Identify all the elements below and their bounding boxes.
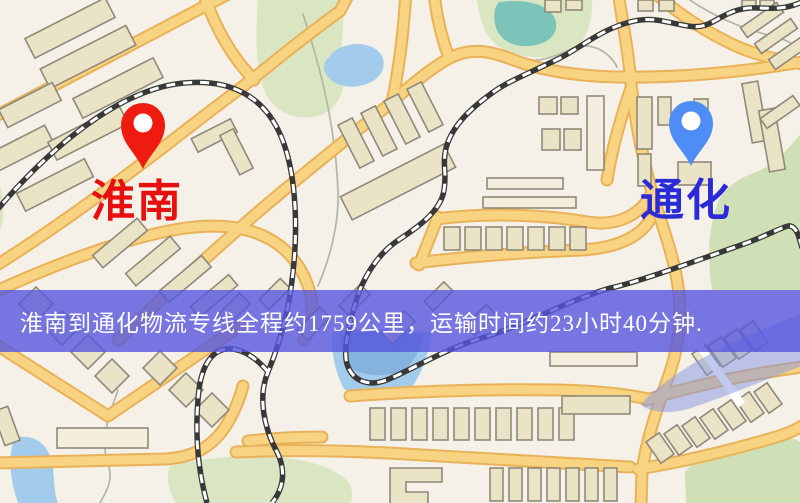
destination-city-label: 通化 [640, 179, 732, 223]
destination-pin-hole [682, 112, 701, 131]
logistics-route-map: 淮南 通化 淮南到通化物流专线全程约1759公里，运输时间约23小时40分钟. [0, 0, 800, 503]
destination-pin-shape [669, 101, 713, 166]
route-info-text: 淮南到通化物流专线全程约1759公里，运输时间约23小时40分钟. [20, 304, 703, 338]
origin-city-label: 淮南 [91, 180, 183, 224]
destination-pin[interactable] [669, 101, 713, 166]
route-info-banner: 淮南到通化物流专线全程约1759公里，运输时间约23小时40分钟. [0, 290, 800, 352]
origin-pin-hole [134, 114, 153, 133]
map-canvas[interactable] [0, 0, 800, 503]
